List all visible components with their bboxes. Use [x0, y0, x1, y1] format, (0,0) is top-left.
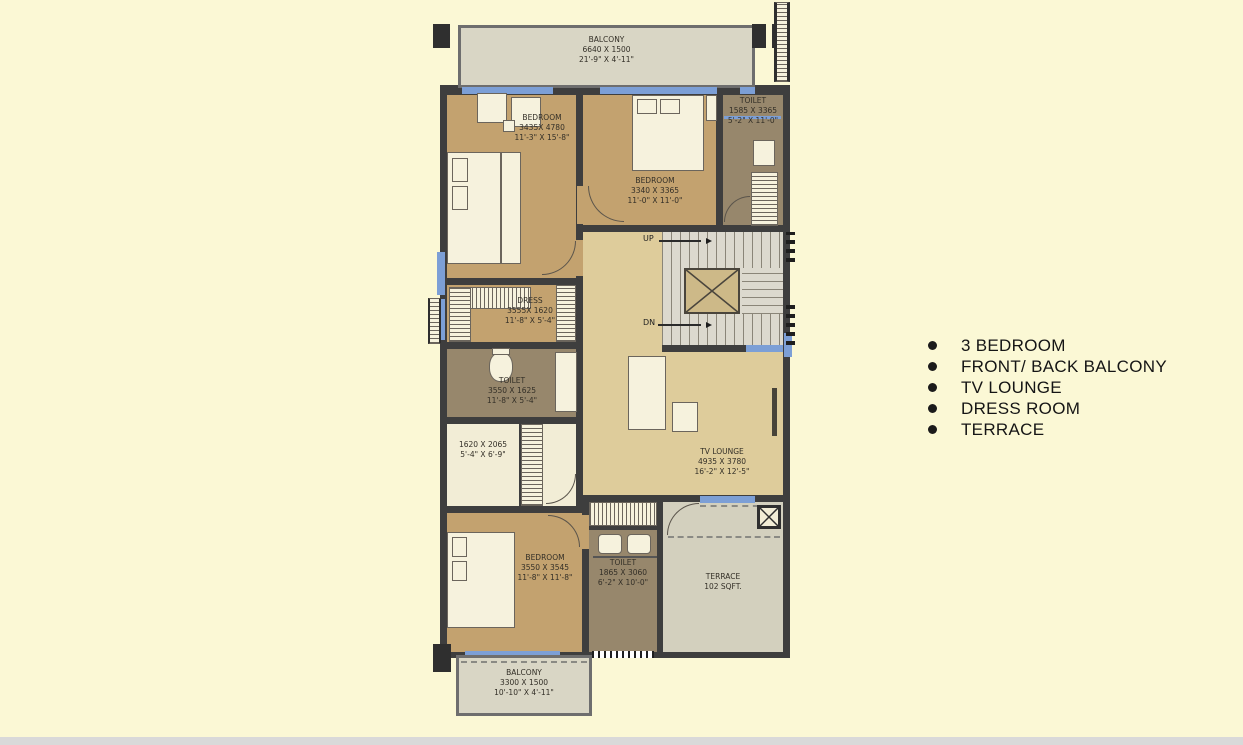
room-name: DRESS — [485, 296, 575, 306]
pillar — [433, 644, 451, 672]
feature-label: DRESS ROOM — [961, 399, 1080, 419]
door-gap — [576, 240, 583, 276]
pillow — [452, 186, 468, 210]
room-name: BEDROOM — [500, 553, 590, 563]
room-dims-mm: 3550 X 3545 — [500, 563, 590, 573]
room-dims-ft: 16'-2" X 12'-5" — [677, 467, 767, 477]
room-dims-mm: 1585 X 3365 — [723, 106, 783, 116]
window — [740, 87, 755, 94]
stair-landing-x — [684, 268, 740, 314]
pillow — [637, 99, 657, 114]
room-dims-ft: 6'-2" X 10'-0" — [590, 578, 656, 588]
feature-label: TERRACE — [961, 420, 1044, 440]
room-name: TOILET — [590, 558, 656, 568]
wardrobe-hatch — [521, 424, 543, 506]
room-name: BEDROOM — [497, 113, 587, 123]
toilet-bottom-label: TOILET 1865 X 3060 6'-2" X 10'-0" — [590, 558, 656, 588]
bed-fold-line — [500, 153, 502, 263]
bullet-icon — [928, 362, 937, 371]
room-store — [447, 424, 519, 506]
room-dims-ft: 11'-8" X 5'-4" — [485, 316, 575, 326]
feature-item: DRESS ROOM — [928, 398, 1167, 419]
feature-item: TV LOUNGE — [928, 377, 1167, 398]
pillow — [452, 537, 467, 557]
room-name: TOILET — [467, 376, 557, 386]
room-dims-mm: 1865 X 3060 — [590, 568, 656, 578]
duct-hatch — [774, 2, 790, 82]
bullet-icon — [928, 404, 937, 413]
feature-item: TERRACE — [928, 419, 1167, 440]
dress-label: DRESS 3555X 1620 11'-8" X 5'-4" — [485, 296, 575, 326]
room-dims-mm: 3555X 1620 — [485, 306, 575, 316]
feature-label: 3 BEDROOM — [961, 336, 1066, 356]
window — [746, 345, 783, 352]
pillow — [452, 561, 467, 581]
floor-plan-page: BALCONY 6640 X 1500 21'-9" X 4'-11" UP D… — [0, 0, 1243, 745]
stair-dn-leader — [658, 324, 701, 326]
balcony-top-label: BALCONY 6640 X 1500 21'-9" X 4'-11" — [458, 35, 755, 65]
pillow — [660, 99, 680, 114]
room-dims-ft: 11'-8" X 11'-8" — [500, 573, 590, 583]
room-name: BALCONY — [458, 35, 755, 45]
window — [700, 496, 755, 503]
table — [672, 402, 698, 432]
room-area: 102 SQFT. — [678, 582, 768, 592]
wardrobe-hatch — [449, 287, 471, 342]
stair-dn-label: DN — [643, 318, 655, 327]
feature-label: FRONT/ BACK BALCONY — [961, 357, 1167, 377]
room-dims-ft: 10'-10" X 4'-11" — [456, 688, 592, 698]
bullet-icon — [928, 341, 937, 350]
room-name: BALCONY — [456, 668, 592, 678]
stair-up-leader — [659, 240, 701, 242]
wall-fins — [428, 298, 441, 344]
bullet-icon — [928, 425, 937, 434]
shaft-x-box — [757, 505, 781, 529]
room-dims-mm: 3550 X 1625 — [467, 386, 557, 396]
wall-fins — [786, 232, 795, 262]
room-dims-ft: 5'-4" X 6'-9" — [447, 450, 519, 460]
room-dims-mm: 3300 X 1500 — [456, 678, 592, 688]
room-name: TERRACE — [678, 572, 768, 582]
wardrobe-hatch — [589, 502, 657, 526]
down-arrow-icon — [706, 322, 712, 328]
window — [600, 87, 717, 94]
pillar — [433, 24, 450, 48]
sink — [753, 140, 775, 166]
room-dims-ft: 11'-0" X 11'-0" — [610, 196, 700, 206]
door-gap — [577, 186, 583, 224]
footer-strip — [0, 737, 1243, 745]
balcony-dashed-line — [461, 661, 587, 663]
room-dims-mm: 3435X 4780 — [497, 123, 587, 133]
room-name: TOILET — [723, 96, 783, 106]
room-dims-ft: 11'-8" X 5'-4" — [467, 396, 557, 406]
window — [462, 87, 553, 94]
room-dims-mm: 1620 X 2065 — [447, 440, 519, 450]
room-dims-ft: 21'-9" X 4'-11" — [458, 55, 755, 65]
bedroom-1-label: BEDROOM 3435X 4780 11'-3" X 15'-8" — [497, 113, 587, 143]
sofa — [628, 356, 666, 430]
sink — [627, 534, 651, 554]
balcony-bottom-label: BALCONY 3300 X 1500 10'-10" X 4'-11" — [456, 668, 592, 698]
tv-unit — [772, 388, 777, 436]
stair-side-flight — [742, 268, 783, 314]
feature-item: FRONT/ BACK BALCONY — [928, 356, 1167, 377]
bedroom-3-label: BEDROOM 3550 X 3545 11'-8" X 11'-8" — [500, 553, 590, 583]
store-label: 1620 X 2065 5'-4" X 6'-9" — [447, 440, 519, 460]
shelf-hatch — [751, 172, 778, 226]
room-dims-mm: 4935 X 3780 — [677, 457, 767, 467]
room-name: BEDROOM — [610, 176, 700, 186]
nightstand — [706, 95, 717, 121]
pillow — [452, 158, 468, 182]
feature-item: 3 BEDROOM — [928, 335, 1167, 356]
toilet-mid-label: TOILET 3550 X 1625 11'-8" X 5'-4" — [467, 376, 557, 406]
tv-lounge-label: TV LOUNGE 4935 X 3780 16'-2" X 12'-5" — [677, 447, 767, 477]
sink — [598, 534, 622, 554]
door-gap — [582, 515, 589, 549]
room-name: TV LOUNGE — [677, 447, 767, 457]
wall-fins — [786, 302, 795, 345]
stair-up-label: UP — [643, 234, 654, 243]
terrace-label: TERRACE 102 SQFT. — [678, 572, 768, 592]
bedroom-2-label: BEDROOM 3340 X 3365 11'-0" X 11'-0" — [610, 176, 700, 206]
room-dims-ft: 11'-3" X 15'-8" — [497, 133, 587, 143]
feature-label: TV LOUNGE — [961, 378, 1062, 398]
up-arrow-icon — [706, 238, 712, 244]
bath-shelf — [555, 352, 577, 412]
room-dims-mm: 6640 X 1500 — [458, 45, 755, 55]
feature-list: 3 BEDROOM FRONT/ BACK BALCONY TV LOUNGE … — [928, 335, 1167, 440]
bullet-icon — [928, 383, 937, 392]
vent-hatch — [592, 651, 654, 658]
toilet-top-label: TOILET 1585 X 3365 5'-2" X 11'-0" — [723, 96, 783, 126]
room-dims-ft: 5'-2" X 11'-0" — [723, 116, 783, 126]
terrace-dashed-line — [668, 536, 780, 538]
window — [437, 252, 445, 295]
toilet-wc-tank — [492, 348, 510, 355]
room-dims-mm: 3340 X 3365 — [610, 186, 700, 196]
